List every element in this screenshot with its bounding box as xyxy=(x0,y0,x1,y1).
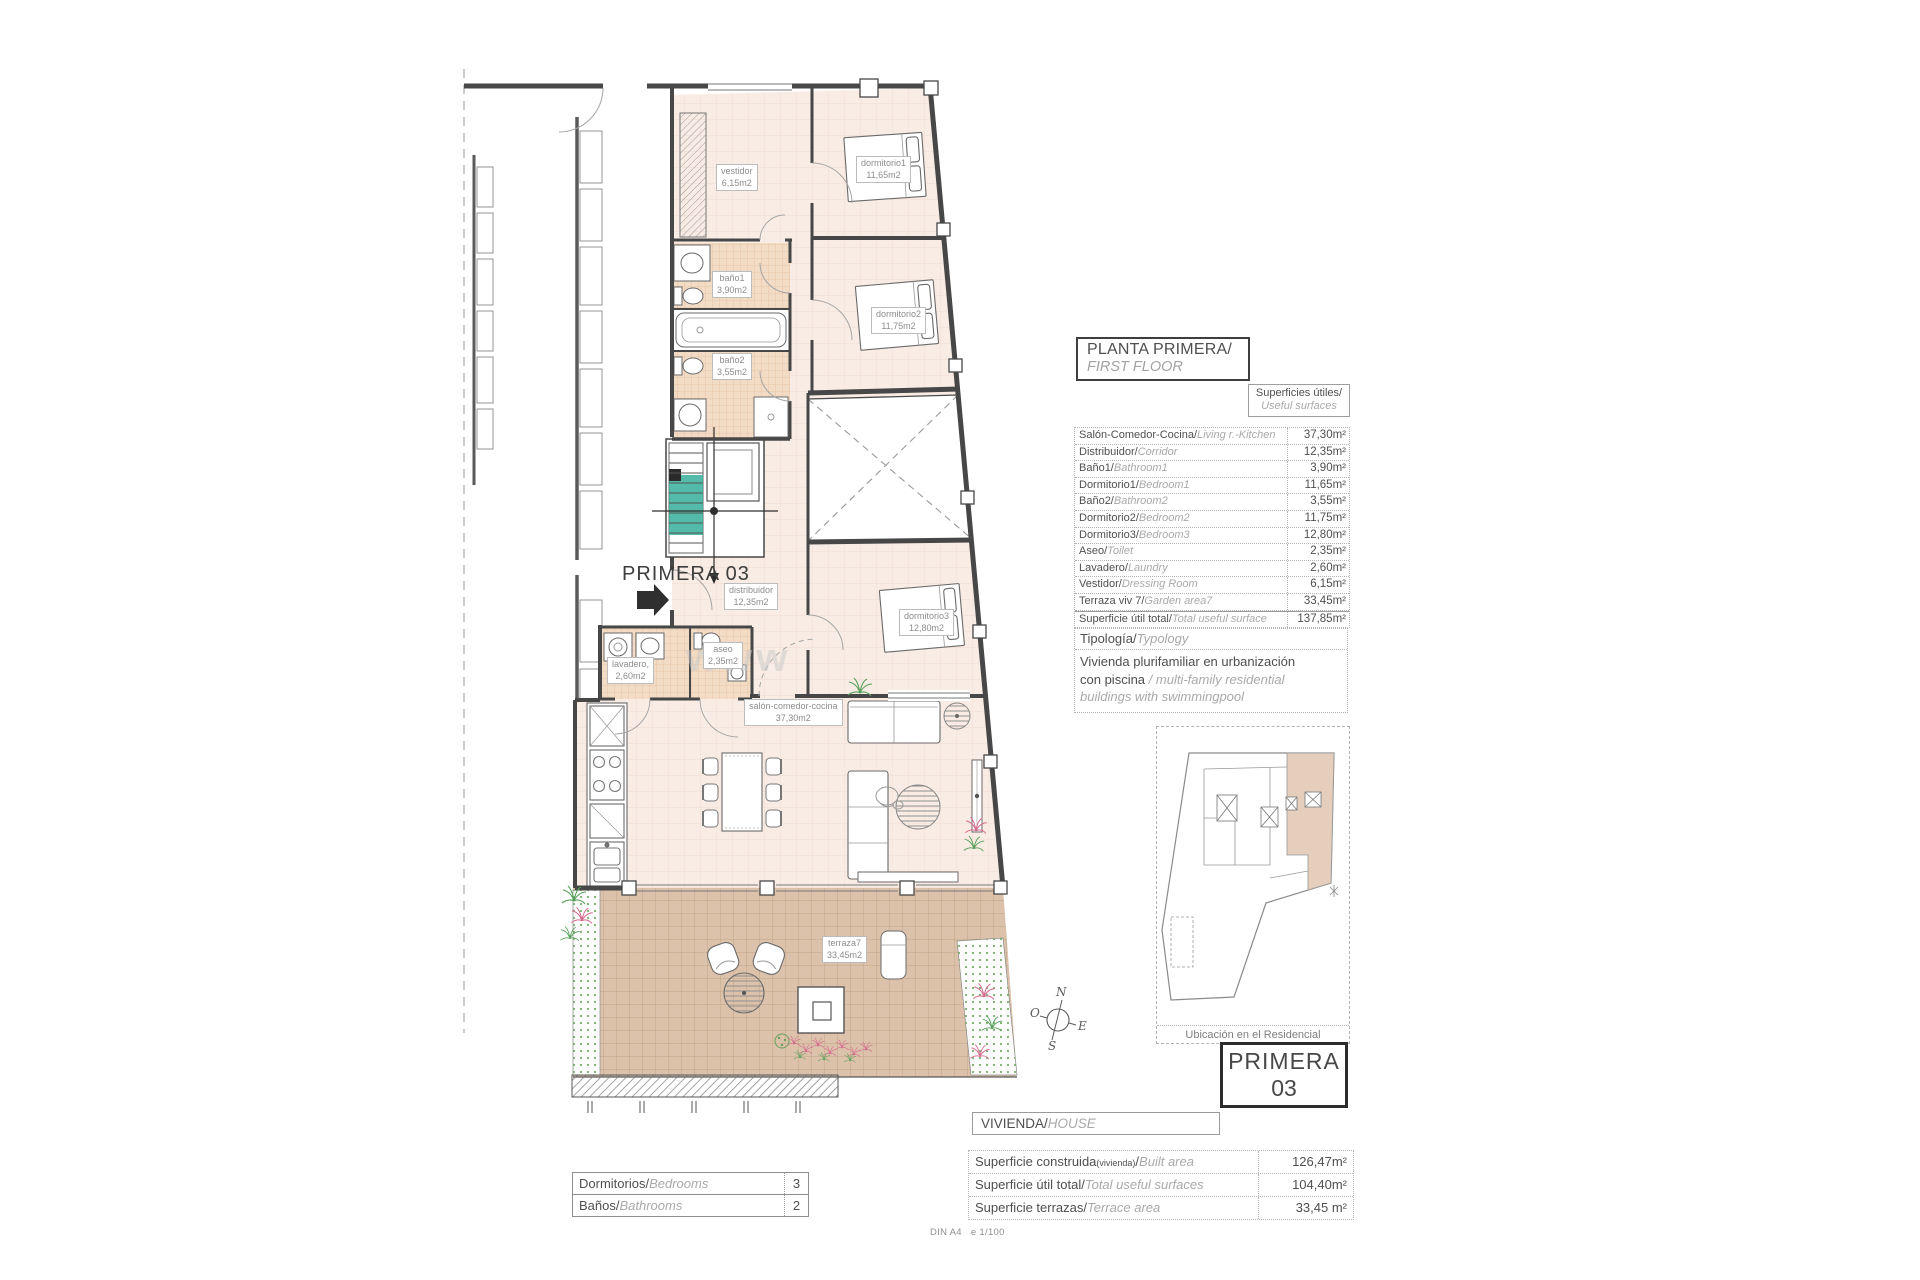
compass-n: N xyxy=(1055,985,1067,999)
vivienda-header: VIVIENDA/HOUSE xyxy=(972,1112,1220,1135)
useful-surfaces-table: Salón-Comedor-Cocina/Living r.-Kitchen37… xyxy=(1074,427,1350,628)
table-row: Lavadero/Laundry2,60m² xyxy=(1075,561,1349,578)
room-label-aseo: aseo2,35m2 xyxy=(703,642,743,669)
table-row: Superficie terrazas/Terrace area 33,45 m… xyxy=(969,1197,1353,1219)
compass-s: S xyxy=(1048,1039,1056,1053)
room-label-dormitorio2: dormitorio211,75m2 xyxy=(871,307,926,334)
unit-arrow-icon xyxy=(637,584,669,616)
table-row: Aseo/Toilet2,35m² xyxy=(1075,544,1349,561)
table-row: Baño2/Bathroom23,55m² xyxy=(1075,494,1349,511)
plan-title-en: FIRST FLOOR xyxy=(1087,359,1248,375)
table-row: Baño1/Bathroom13,90m² xyxy=(1075,461,1349,478)
room-label-bano1: baño13,90m2 xyxy=(712,271,752,298)
dining-table xyxy=(703,753,781,831)
room-label-bano2: baño23,55m2 xyxy=(712,353,752,380)
room-label-dormitorio1: dormitorio111,65m2 xyxy=(856,156,911,183)
plan-title: PLANTA PRIMERA/ xyxy=(1087,341,1248,359)
compass-o: O xyxy=(1030,1006,1040,1020)
location-diagram: Ubicación en el Residencial xyxy=(1156,726,1350,1044)
useful-surfaces-header: Superficies útiles/ Useful surfaces xyxy=(1248,384,1350,417)
typology-box: Tipología/Typology Vivienda plurifamilia… xyxy=(1074,628,1348,713)
table-row: Terraza viv 7/Garden area733,45m² xyxy=(1075,594,1349,611)
unit-callout: PRIMERA 03 xyxy=(622,563,750,586)
wardrobe-hatch xyxy=(680,113,706,237)
room-label-salon: salón-comedor-cocina37,30m2 xyxy=(744,699,843,726)
table-row: Salón-Comedor-Cocina/Living r.-Kitchen37… xyxy=(1075,428,1349,445)
table-row: Baños/Bathrooms 2 xyxy=(573,1194,808,1216)
table-row: Superficie construida(vivienda)/Built ar… xyxy=(969,1151,1353,1174)
table-row: Vestidor/Dressing Room6,15m² xyxy=(1075,577,1349,594)
room-label-dormitorio3: dormitorio312,80m2 xyxy=(899,609,954,636)
table-row-total: Superficie útil total/Total useful surfa… xyxy=(1075,611,1349,628)
compass-e: E xyxy=(1077,1019,1087,1033)
table-row: Dormitorio3/Bedroom312,80m² xyxy=(1075,528,1349,545)
table-row: Dormitorio2/Bedroom211,75m² xyxy=(1075,511,1349,528)
courtyard-void xyxy=(808,395,972,541)
terrace xyxy=(572,888,1017,1113)
room-label-lavadero: lavadero,2,60m2 xyxy=(607,657,654,684)
rooms-count-table: Dormitorios/Bedrooms 3 Baños/Bathrooms 2 xyxy=(572,1172,809,1217)
compass-rose-icon: N O E S xyxy=(1016,976,1100,1060)
table-row: Distribuidor/Corridor12,35m² xyxy=(1075,445,1349,462)
sheet-footer: DIN A4e 1/100 xyxy=(930,1227,1014,1238)
location-caption: Ubicación en el Residencial xyxy=(1157,1025,1349,1041)
kitchen xyxy=(587,703,627,887)
unit-number-box: PRIMERA 03 xyxy=(1220,1042,1348,1108)
room-label-vestidor: vestidor6,15m2 xyxy=(716,164,758,191)
room-label-distribuidor: distribuidor12,35m2 xyxy=(724,583,778,610)
room-label-terraza: terraza733,45m2 xyxy=(822,936,867,963)
table-row: Dormitorio1/Bedroom111,65m² xyxy=(1075,478,1349,495)
residential-site-plan xyxy=(1160,743,1346,1013)
table-row: Superficie útil total/Total useful surfa… xyxy=(969,1174,1353,1197)
house-surfaces-table: Superficie construida(vivienda)/Built ar… xyxy=(968,1150,1354,1220)
title-block: PLANTA PRIMERA/ FIRST FLOOR xyxy=(1076,337,1250,381)
table-row: Dormitorios/Bedrooms 3 xyxy=(573,1173,808,1194)
